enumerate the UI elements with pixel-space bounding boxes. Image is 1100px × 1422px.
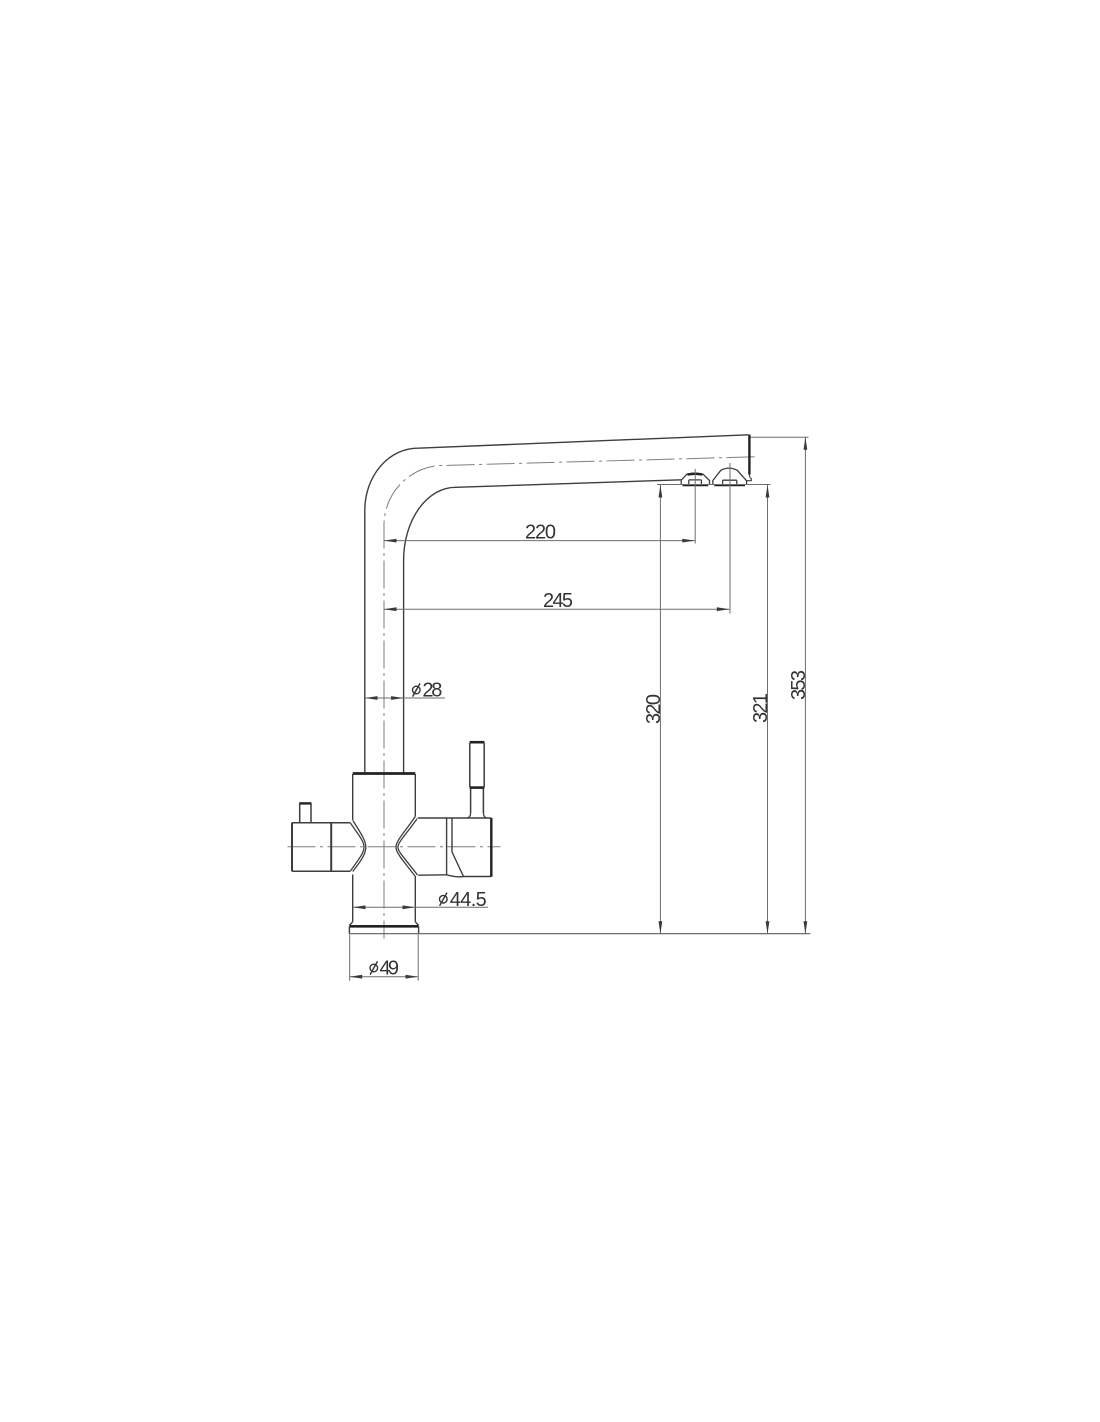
svg-text:245: 245 — [543, 590, 573, 612]
svg-text:49: 49 — [379, 958, 399, 980]
svg-text:220: 220 — [525, 522, 556, 544]
svg-text:44.5: 44.5 — [450, 889, 487, 911]
svg-text:353: 353 — [788, 670, 810, 700]
svg-text:320: 320 — [643, 694, 665, 724]
svg-text:28: 28 — [422, 680, 442, 702]
svg-text:321: 321 — [750, 693, 772, 723]
